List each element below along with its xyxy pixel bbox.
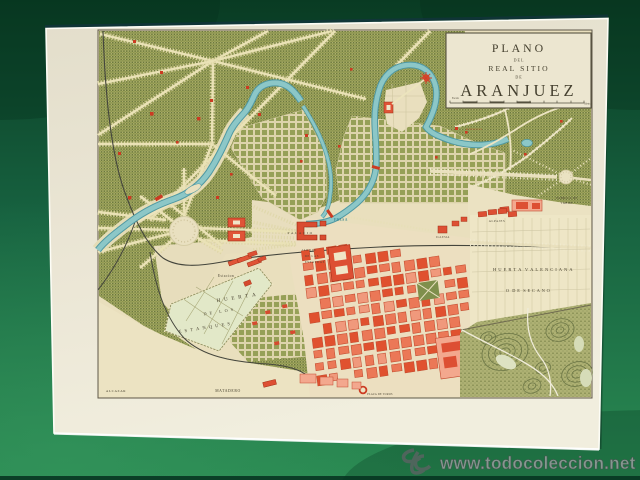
svg-text:REAL SITIO: REAL SITIO [488, 64, 549, 73]
svg-text:www.todocoleccion.net: www.todocoleccion.net [439, 453, 636, 473]
svg-text:FABRICA DE: FABRICA DE [556, 196, 577, 200]
svg-text:O D E S E C A N O: O D E S E C A N O [506, 288, 550, 293]
svg-text:Escala: Escala [452, 97, 460, 100]
svg-text:JABON: JABON [561, 201, 573, 205]
svg-text:ALPAJES: ALPAJES [489, 219, 505, 223]
svg-text:H U E R T A V A L E N C I A N: H U E R T A V A L E N C I A N A [493, 267, 573, 272]
svg-text:Metros: Metros [584, 103, 592, 106]
svg-text:DEL: DEL [514, 58, 525, 63]
svg-text:ESTATUAS: ESTATUAS [305, 261, 325, 264]
svg-text:DE: DE [515, 75, 522, 80]
svg-text:PLAZA DE TOROS: PLAZA DE TOROS [367, 393, 393, 396]
svg-text:M.DELICIAS: M.DELICIAS [466, 128, 483, 131]
svg-text:Estacion: Estacion [218, 274, 234, 278]
svg-text:IGLESIA: IGLESIA [436, 236, 450, 239]
svg-text:MATADERO: MATADERO [215, 389, 241, 393]
svg-text:ARANJUEZ: ARANJUEZ [460, 81, 577, 100]
svg-text:JARDIN: JARDIN [302, 249, 317, 252]
svg-text:DE LAS: DE LAS [305, 255, 320, 258]
svg-text:P A L A C I O: P A L A C I O [288, 231, 313, 235]
svg-text:PLANO: PLANO [492, 41, 546, 55]
svg-text:FRESA: FRESA [334, 218, 348, 222]
svg-text:ALCAZAR: ALCAZAR [106, 389, 126, 393]
